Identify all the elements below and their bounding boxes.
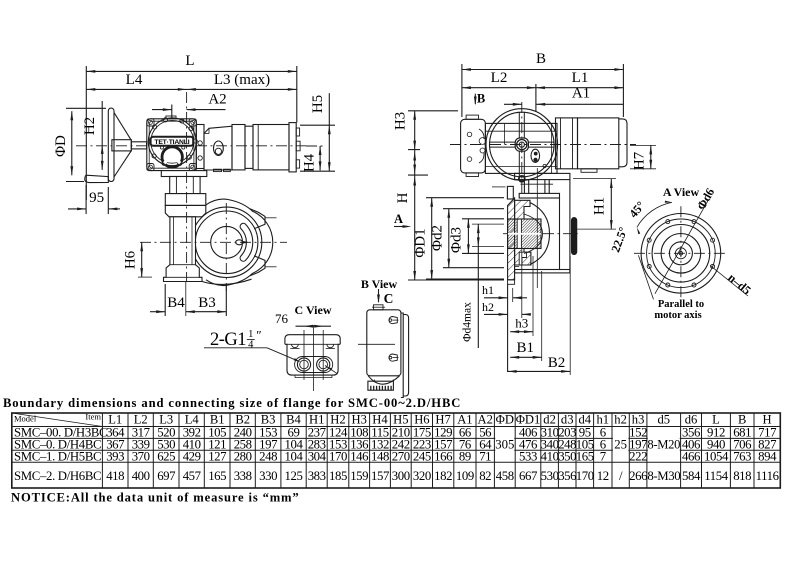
svg-text:109: 109 bbox=[456, 469, 474, 483]
svg-text:B4: B4 bbox=[167, 295, 185, 311]
svg-text:458: 458 bbox=[496, 469, 514, 483]
svg-text:h1: h1 bbox=[597, 412, 610, 426]
svg-text:4: 4 bbox=[248, 339, 254, 350]
svg-text:B: B bbox=[536, 51, 546, 67]
svg-text:350: 350 bbox=[558, 449, 576, 463]
svg-text:270: 270 bbox=[392, 449, 410, 463]
svg-text:h2: h2 bbox=[482, 300, 494, 314]
svg-text:330: 330 bbox=[259, 469, 277, 483]
svg-text:H4: H4 bbox=[302, 153, 318, 172]
svg-text:h3: h3 bbox=[515, 316, 528, 331]
svg-text:H2: H2 bbox=[330, 412, 345, 426]
svg-text:2-G1: 2-G1 bbox=[210, 330, 246, 350]
svg-text:82: 82 bbox=[479, 469, 491, 483]
svg-text:H3: H3 bbox=[351, 412, 366, 426]
svg-text:182: 182 bbox=[434, 469, 452, 483]
svg-text:248: 248 bbox=[259, 449, 277, 463]
svg-text:B4: B4 bbox=[286, 412, 301, 426]
svg-text:697: 697 bbox=[157, 469, 176, 483]
svg-text:motor axis: motor axis bbox=[654, 310, 701, 321]
svg-text:370: 370 bbox=[132, 449, 150, 463]
svg-text:12: 12 bbox=[597, 469, 609, 483]
svg-text:667: 667 bbox=[519, 469, 538, 483]
svg-text:h1: h1 bbox=[482, 283, 494, 297]
svg-text:89: 89 bbox=[459, 449, 471, 463]
svg-text:L: L bbox=[185, 53, 194, 69]
svg-text:H6: H6 bbox=[414, 412, 429, 426]
svg-text:SMC–2. D/H6BC: SMC–2. D/H6BC bbox=[14, 469, 101, 483]
svg-text:ΦD: ΦD bbox=[53, 135, 69, 157]
svg-text:L3: L3 bbox=[159, 412, 173, 426]
svg-text:170: 170 bbox=[329, 449, 347, 463]
svg-text:7: 7 bbox=[600, 449, 607, 463]
svg-text:B: B bbox=[477, 92, 485, 106]
svg-text:338: 338 bbox=[234, 469, 252, 483]
svg-text:Φd4max: Φd4max bbox=[462, 302, 474, 342]
svg-text:A1: A1 bbox=[457, 412, 472, 426]
svg-text:A1: A1 bbox=[572, 86, 590, 102]
svg-text:d3: d3 bbox=[561, 412, 574, 426]
svg-text:H5: H5 bbox=[310, 95, 326, 113]
svg-text:L1: L1 bbox=[108, 412, 122, 426]
svg-text:NOTICE:All the data unit of me: NOTICE:All the data unit of measure is “… bbox=[11, 491, 300, 505]
svg-text:71: 71 bbox=[479, 449, 491, 463]
svg-text:H7: H7 bbox=[435, 412, 450, 426]
svg-text:222: 222 bbox=[629, 449, 647, 463]
svg-text:H1: H1 bbox=[592, 197, 608, 215]
svg-text:L2: L2 bbox=[134, 412, 148, 426]
svg-text:H1: H1 bbox=[309, 412, 324, 426]
svg-text:L3 (max): L3 (max) bbox=[214, 72, 270, 88]
svg-text:166: 166 bbox=[434, 449, 453, 463]
svg-text:h3: h3 bbox=[632, 412, 645, 426]
svg-text:304: 304 bbox=[308, 449, 327, 463]
svg-text:245: 245 bbox=[413, 449, 431, 463]
svg-text:B2: B2 bbox=[548, 355, 566, 371]
svg-text:1054: 1054 bbox=[704, 449, 729, 463]
svg-text:530: 530 bbox=[541, 469, 559, 483]
svg-text:Φd2: Φd2 bbox=[430, 225, 446, 251]
svg-text:165: 165 bbox=[208, 469, 226, 483]
svg-text:H7: H7 bbox=[632, 151, 648, 170]
svg-text:383: 383 bbox=[308, 469, 326, 483]
svg-text:B View: B View bbox=[361, 277, 398, 291]
svg-text:Item: Item bbox=[85, 412, 101, 422]
svg-text:466: 466 bbox=[682, 449, 701, 463]
svg-text:L2: L2 bbox=[491, 70, 508, 86]
svg-text:76: 76 bbox=[275, 311, 289, 326]
svg-text:356: 356 bbox=[558, 469, 577, 483]
svg-text:Φd3: Φd3 bbox=[449, 227, 465, 253]
svg-text:″: ″ bbox=[256, 328, 261, 343]
svg-text:148: 148 bbox=[371, 449, 389, 463]
svg-text:8-M30: 8-M30 bbox=[647, 469, 680, 483]
svg-text:A2: A2 bbox=[477, 412, 492, 426]
svg-text:157: 157 bbox=[371, 469, 390, 483]
svg-text:165: 165 bbox=[576, 449, 594, 463]
svg-text:L4: L4 bbox=[126, 72, 143, 88]
svg-text:1154: 1154 bbox=[704, 469, 729, 483]
svg-text:300: 300 bbox=[392, 469, 410, 483]
svg-text:410: 410 bbox=[541, 449, 559, 463]
svg-text:8-M20: 8-M20 bbox=[647, 437, 680, 451]
svg-text:104: 104 bbox=[285, 449, 304, 463]
svg-text:d5: d5 bbox=[658, 412, 671, 426]
svg-text:H2: H2 bbox=[82, 117, 98, 135]
svg-text:B1: B1 bbox=[210, 412, 225, 426]
svg-text:d4: d4 bbox=[579, 412, 592, 426]
svg-text:A2: A2 bbox=[208, 92, 226, 108]
svg-text:h2: h2 bbox=[614, 412, 627, 426]
svg-text:B2: B2 bbox=[235, 412, 250, 426]
svg-text:H: H bbox=[395, 192, 411, 203]
svg-text:A: A bbox=[394, 212, 403, 226]
svg-text:ΦD: ΦD bbox=[496, 412, 514, 426]
svg-text:584: 584 bbox=[682, 469, 701, 483]
svg-text:TET·TIANLI: TET·TIANLI bbox=[154, 139, 189, 146]
svg-text:B1: B1 bbox=[517, 340, 535, 356]
svg-text:L: L bbox=[712, 412, 720, 426]
svg-text:A View: A View bbox=[663, 185, 700, 199]
svg-text:L1: L1 bbox=[572, 70, 589, 86]
svg-text:L4: L4 bbox=[185, 412, 200, 426]
svg-text:818: 818 bbox=[733, 469, 751, 483]
svg-text:B3: B3 bbox=[261, 412, 276, 426]
svg-text:Parallel to: Parallel to bbox=[658, 299, 704, 310]
svg-text:320: 320 bbox=[413, 469, 431, 483]
svg-text:C: C bbox=[384, 291, 394, 306]
svg-text:d2: d2 bbox=[543, 412, 556, 426]
svg-text:146: 146 bbox=[350, 449, 369, 463]
svg-text:305: 305 bbox=[495, 437, 514, 451]
svg-text:625: 625 bbox=[157, 449, 175, 463]
svg-text:d6: d6 bbox=[685, 412, 698, 426]
svg-text:C View: C View bbox=[295, 303, 332, 317]
svg-text:280: 280 bbox=[234, 449, 252, 463]
svg-text:533: 533 bbox=[519, 449, 537, 463]
svg-text:894: 894 bbox=[758, 449, 777, 463]
svg-text:266: 266 bbox=[629, 469, 648, 483]
svg-text:ΦD1: ΦD1 bbox=[413, 228, 429, 257]
svg-text:185: 185 bbox=[329, 469, 347, 483]
svg-text:B: B bbox=[738, 412, 746, 426]
svg-text:429: 429 bbox=[183, 449, 201, 463]
svg-text:SMC–1. D/H5BC: SMC–1. D/H5BC bbox=[14, 449, 101, 463]
svg-text:95: 95 bbox=[89, 190, 104, 206]
svg-text:763: 763 bbox=[733, 449, 751, 463]
svg-text:457: 457 bbox=[183, 469, 202, 483]
svg-text:400: 400 bbox=[132, 469, 150, 483]
svg-text:418: 418 bbox=[106, 469, 124, 483]
svg-text:1116: 1116 bbox=[756, 469, 780, 483]
svg-text:125: 125 bbox=[285, 469, 303, 483]
svg-text:H5: H5 bbox=[393, 412, 408, 426]
svg-text:Boundary dimensions and connec: Boundary dimensions and connecting size … bbox=[3, 396, 461, 410]
svg-text:393: 393 bbox=[106, 449, 124, 463]
svg-text:H6: H6 bbox=[123, 250, 139, 269]
svg-text:H: H bbox=[763, 412, 772, 426]
svg-text:H4: H4 bbox=[372, 412, 388, 426]
svg-text:B3: B3 bbox=[198, 295, 216, 311]
svg-text:25: 25 bbox=[614, 437, 627, 451]
svg-text:170: 170 bbox=[576, 469, 594, 483]
svg-text:159: 159 bbox=[350, 469, 368, 483]
svg-text:ΦD1: ΦD1 bbox=[516, 412, 541, 426]
svg-text:H3: H3 bbox=[393, 112, 409, 130]
svg-text:127: 127 bbox=[208, 449, 227, 463]
